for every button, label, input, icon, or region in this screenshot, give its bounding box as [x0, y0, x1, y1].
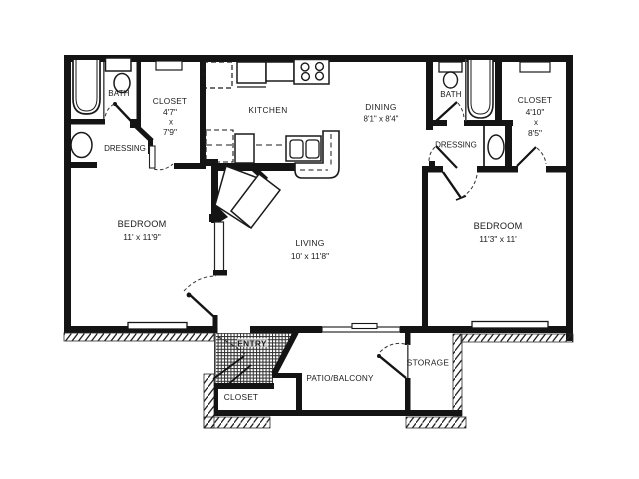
svg-text:8'5": 8'5" — [528, 128, 542, 138]
svg-text:CLOSET: CLOSET — [518, 95, 552, 105]
svg-text:DINING: DINING — [365, 102, 396, 112]
svg-text:STORAGE: STORAGE — [407, 358, 450, 368]
svg-text:4'7": 4'7" — [163, 107, 177, 117]
svg-text:DRESSING: DRESSING — [435, 141, 477, 150]
svg-text:7'9": 7'9" — [163, 127, 177, 137]
svg-text:11' x 11'9": 11' x 11'9" — [123, 232, 161, 242]
svg-text:BATH: BATH — [440, 90, 462, 99]
svg-text:x: x — [534, 118, 538, 127]
svg-text:10' x 11'8": 10' x 11'8" — [291, 251, 329, 261]
svg-text:PATIO/BALCONY: PATIO/BALCONY — [306, 374, 374, 383]
svg-text:CLOSET: CLOSET — [153, 96, 187, 106]
svg-text:8'1" x 8'4": 8'1" x 8'4" — [364, 115, 399, 124]
svg-text:DRESSING: DRESSING — [104, 144, 146, 153]
svg-text:BATH: BATH — [108, 89, 130, 98]
svg-text:KITCHEN: KITCHEN — [248, 105, 287, 115]
svg-text:BEDROOM: BEDROOM — [474, 221, 523, 231]
svg-text:ENTRY: ENTRY — [237, 339, 266, 349]
svg-text:LIVING: LIVING — [295, 238, 324, 248]
svg-text:BEDROOM: BEDROOM — [118, 219, 167, 229]
svg-text:11'3" x 11': 11'3" x 11' — [479, 234, 517, 244]
svg-text:4'10": 4'10" — [526, 107, 545, 117]
svg-text:x: x — [169, 118, 173, 127]
svg-text:CLOSET: CLOSET — [224, 392, 258, 402]
